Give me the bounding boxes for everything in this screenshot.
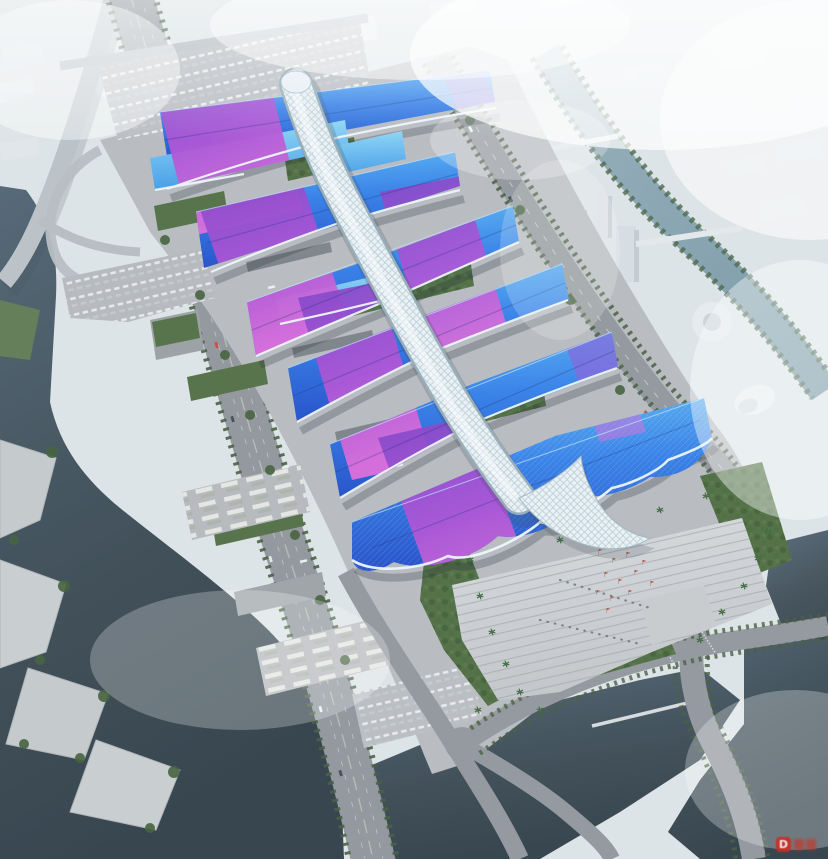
watermark: D: [776, 837, 816, 852]
watermark-glyphs: [794, 839, 816, 850]
scene-canvas: [0, 0, 828, 859]
watermark-logo-icon: D: [776, 837, 791, 852]
aerial-rendering-exhibition-center: D: [0, 0, 828, 859]
haze-clouds: [0, 0, 828, 859]
